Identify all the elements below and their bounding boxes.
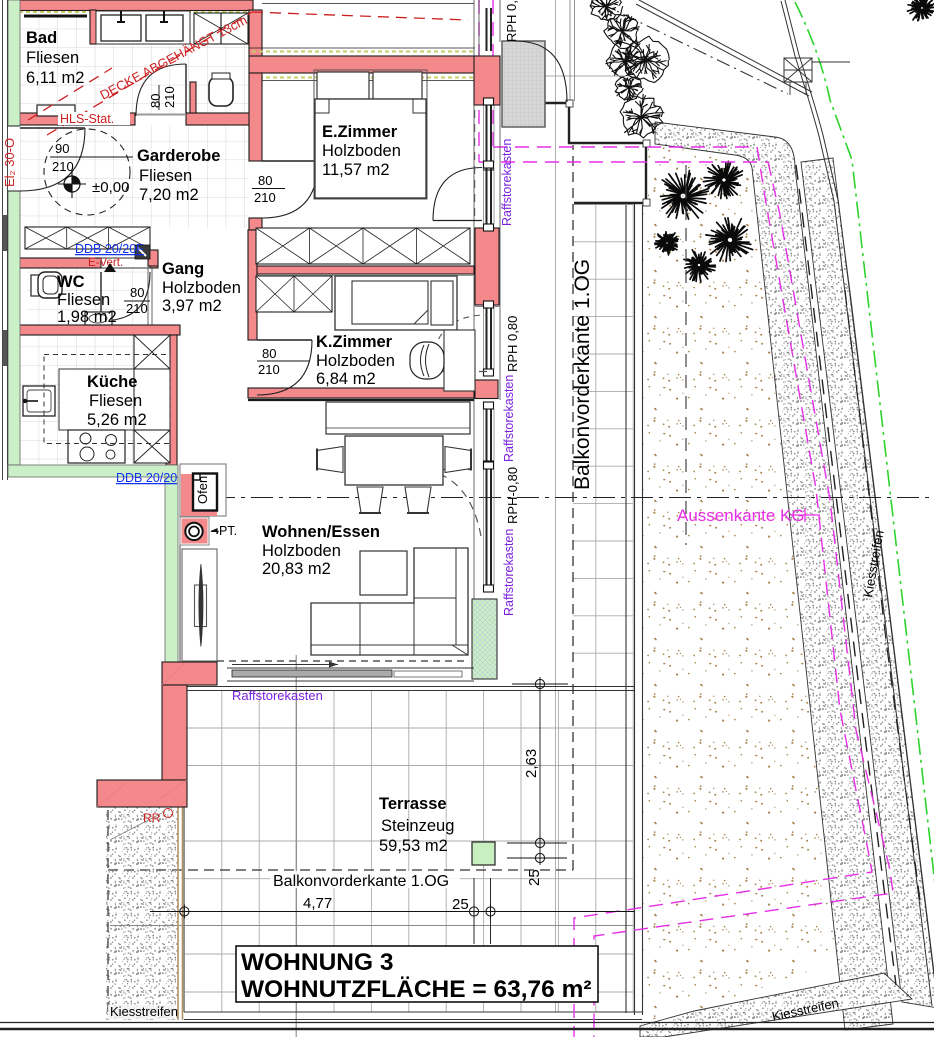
svg-text:DDB 20/20: DDB 20/20 (116, 471, 177, 485)
svg-text:Aussenkante KG: Aussenkante KG (677, 506, 805, 525)
svg-text:WC: WC (57, 273, 85, 291)
svg-text:59,53 m2: 59,53 m2 (379, 837, 448, 855)
svg-text:PT.: PT. (219, 524, 237, 538)
svg-text:7,20 m2: 7,20 m2 (139, 186, 199, 204)
svg-text:RPH-0,80: RPH-0,80 (505, 467, 520, 524)
svg-text:Holzboden: Holzboden (162, 279, 241, 297)
svg-text:2,63: 2,63 (523, 749, 540, 778)
svg-text:Küche: Küche (87, 373, 137, 391)
svg-text:HLS-Stat.: HLS-Stat. (60, 112, 114, 126)
svg-text:20,83 m2: 20,83 m2 (262, 560, 331, 578)
svg-text:Holzboden: Holzboden (262, 542, 341, 560)
svg-text:Raffstorekasten: Raffstorekasten (500, 139, 514, 226)
svg-text:1,98 m2: 1,98 m2 (57, 308, 117, 326)
svg-text:Fliesen: Fliesen (89, 392, 142, 410)
svg-text:Balkonvorderkante 1.OG: Balkonvorderkante 1.OG (571, 259, 594, 490)
svg-text:Garderobe: Garderobe (137, 147, 220, 165)
svg-text:RPH 0,80: RPH 0,80 (505, 316, 520, 372)
svg-text:11,57 m2: 11,57 m2 (322, 161, 390, 179)
svg-text:Bad: Bad (26, 29, 57, 47)
svg-text:Wohnen/Essen: Wohnen/Essen (262, 523, 380, 541)
svg-text:E.Zimmer: E.Zimmer (322, 123, 398, 141)
svg-text:210: 210 (162, 86, 177, 108)
svg-text:6,84 m2: 6,84 m2 (316, 370, 376, 388)
svg-text:80: 80 (258, 173, 272, 188)
svg-text:6,11 m2: 6,11 m2 (26, 69, 84, 87)
svg-text:Steinzeug: Steinzeug (381, 817, 454, 835)
svg-text:Raffstorekasten: Raffstorekasten (232, 688, 323, 703)
svg-text:Raffstorekasten: Raffstorekasten (502, 529, 516, 616)
svg-text:El₂ 30-O: El₂ 30-O (2, 138, 17, 187)
svg-text:WOHNUNG 3: WOHNUNG 3 (241, 949, 393, 976)
svg-text:RPH 0,80: RPH 0,80 (504, 0, 519, 42)
svg-text:25: 25 (452, 896, 469, 913)
svg-text:Terrasse: Terrasse (379, 795, 447, 813)
svg-text:E-Vert.: E-Vert. (88, 257, 123, 269)
svg-text:3,97 m2: 3,97 m2 (162, 297, 222, 315)
svg-text:210: 210 (258, 362, 280, 377)
svg-text:80: 80 (148, 94, 163, 108)
svg-text:Balkonvorderkante 1.OG: Balkonvorderkante 1.OG (273, 873, 449, 890)
svg-text:K.Zimmer: K.Zimmer (316, 333, 393, 351)
svg-text:80: 80 (130, 285, 144, 300)
svg-text:Gang: Gang (162, 260, 204, 278)
svg-text:RR: RR (143, 811, 161, 825)
svg-text:5,26 m2: 5,26 m2 (87, 411, 147, 429)
svg-text:210: 210 (126, 301, 148, 316)
svg-text:25: 25 (526, 869, 543, 886)
svg-text:WOHNUTZFLÄCHE = 63,76 m²: WOHNUTZFLÄCHE = 63,76 m² (241, 976, 592, 1003)
svg-text:80: 80 (262, 346, 276, 361)
svg-text:Raffstorekasten: Raffstorekasten (502, 375, 516, 462)
svg-text:±0,00: ±0,00 (92, 179, 129, 196)
svg-text:Fliesen: Fliesen (139, 167, 192, 185)
svg-text:210: 210 (254, 190, 276, 205)
svg-text:Holzboden: Holzboden (316, 352, 395, 370)
svg-text:Ofen: Ofen (195, 476, 210, 504)
svg-text:Fliesen: Fliesen (57, 291, 110, 309)
svg-text:DDB 20/20F: DDB 20/20F (75, 242, 144, 256)
svg-text:Holzboden: Holzboden (322, 142, 401, 160)
svg-text:210: 210 (52, 159, 74, 174)
svg-text:90: 90 (55, 141, 69, 156)
svg-text:Kiesstreifen: Kiesstreifen (110, 1004, 178, 1019)
svg-text:Fliesen: Fliesen (26, 49, 79, 67)
svg-text:4,77: 4,77 (303, 895, 332, 912)
